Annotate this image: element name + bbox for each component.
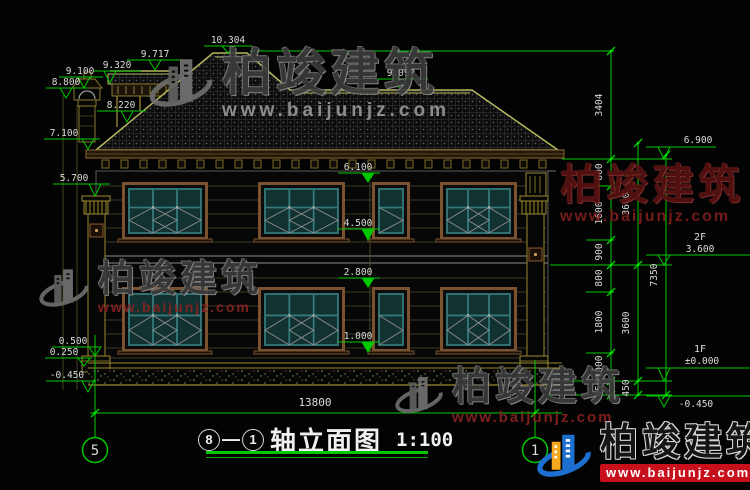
window-sill	[368, 239, 414, 242]
dentil	[444, 160, 451, 168]
dim-label: 1000	[594, 355, 605, 378]
window	[436, 184, 521, 243]
window-sill	[436, 239, 521, 242]
dentil	[273, 160, 280, 168]
dim-label: 800	[594, 269, 605, 286]
elevation-label: 8.800	[52, 77, 81, 88]
eave	[86, 150, 564, 171]
elevation-label: 1.000	[344, 331, 373, 342]
dentil-row	[102, 160, 546, 168]
elevation-label: 5.700	[60, 173, 89, 184]
floor-label: 2F	[694, 232, 706, 243]
dentil	[501, 160, 508, 168]
dentil	[520, 160, 527, 168]
dentil	[121, 160, 128, 168]
window	[368, 289, 414, 355]
elevation-label: 9.717	[141, 49, 170, 60]
elevation-triangle-icon	[222, 46, 234, 53]
elevation-triangle-icon	[658, 255, 670, 265]
elevation-label: 9.092	[387, 68, 416, 79]
dentil	[425, 160, 432, 168]
dentil	[482, 160, 489, 168]
window-sill	[118, 351, 212, 354]
elevation-label: 8.220	[107, 100, 136, 111]
window	[254, 184, 349, 243]
grid-bubble-left-label: 5	[91, 443, 99, 459]
window-sill	[254, 351, 349, 354]
elevation-label: 0.500	[59, 336, 88, 347]
axis-bubble-8: 8	[198, 429, 220, 451]
window	[254, 289, 349, 355]
dim-label: 900	[594, 243, 605, 260]
window	[368, 184, 414, 243]
dim-label: 450	[594, 379, 605, 396]
floor-label: 1F	[694, 344, 706, 355]
elevation-label: 9.320	[103, 60, 132, 71]
axis-bubble-1: 1	[242, 429, 264, 451]
dim-label: 3404	[594, 93, 605, 116]
elevation-label: 0.250	[50, 347, 79, 358]
elevation-drawing: 10.3049.7179.3209.1008.8008.2209.0927.10…	[0, 0, 750, 490]
dentil	[197, 160, 204, 168]
plinth	[88, 363, 562, 385]
window-sill	[118, 239, 212, 242]
elevation-label: -0.450	[50, 370, 85, 381]
elevation-label: 9.100	[66, 66, 95, 77]
dentil	[102, 160, 109, 168]
roof	[96, 53, 558, 150]
dim-label: 800	[594, 163, 605, 180]
dentil	[159, 160, 166, 168]
dentil	[406, 160, 413, 168]
title-underline-thin	[206, 457, 428, 458]
dentil	[140, 160, 147, 168]
dentil	[216, 160, 223, 168]
elevation-label: 10.304	[211, 35, 246, 46]
elevation-label: 4.500	[344, 218, 373, 229]
dentil	[292, 160, 299, 168]
dentil	[330, 160, 337, 168]
dim-label: 7350	[649, 263, 660, 286]
grid-bubble-right: 1	[523, 438, 548, 463]
axis-dash: —	[222, 429, 240, 450]
window-sill	[254, 239, 349, 242]
elevation-label: ±0.000	[685, 356, 720, 367]
window-sill	[368, 351, 414, 354]
dentil	[463, 160, 470, 168]
wing-roof-tiles	[108, 74, 176, 84]
dentil	[254, 160, 261, 168]
window	[118, 184, 212, 243]
elevation-triangle-icon	[149, 60, 161, 70]
window	[436, 289, 521, 355]
dim-label: 1600	[594, 201, 605, 224]
dim-label: 3600	[621, 311, 632, 334]
title-underline-thick	[206, 451, 428, 454]
elevation-label: 3.600	[686, 244, 715, 255]
dim-label: 450	[621, 379, 632, 396]
window	[118, 289, 212, 355]
elevation-label: 2.800	[344, 267, 373, 278]
dim-label: 3600	[621, 192, 632, 215]
dimension-chains: 3404800160090080018001000450360036004507…	[594, 47, 670, 399]
elevation-triangle-icon	[658, 368, 670, 381]
dentil	[387, 160, 394, 168]
dentil	[539, 160, 546, 168]
dim-label: 1800	[594, 310, 605, 333]
elevation-label: 6.900	[684, 135, 713, 146]
dentil	[178, 160, 185, 168]
title-scale: 1:100	[396, 429, 453, 451]
main-roof	[96, 53, 558, 150]
elevation-label: 7.100	[50, 128, 79, 139]
grid-bubble-left: 5	[83, 438, 108, 463]
elevation-triangle-icon	[60, 88, 72, 98]
elevation-label: 6.100	[344, 162, 373, 173]
grid-bubble-right-label: 1	[531, 443, 539, 459]
dentil	[311, 160, 318, 168]
elevation-label: -0.450	[679, 399, 714, 410]
elevation-triangle-icon	[394, 79, 406, 89]
window-sill	[436, 351, 521, 354]
dentil	[235, 160, 242, 168]
cad-elevation-canvas: 10.3049.7179.3209.1008.8008.2209.0927.10…	[0, 0, 750, 490]
dim-label-width: 13800	[298, 396, 331, 409]
